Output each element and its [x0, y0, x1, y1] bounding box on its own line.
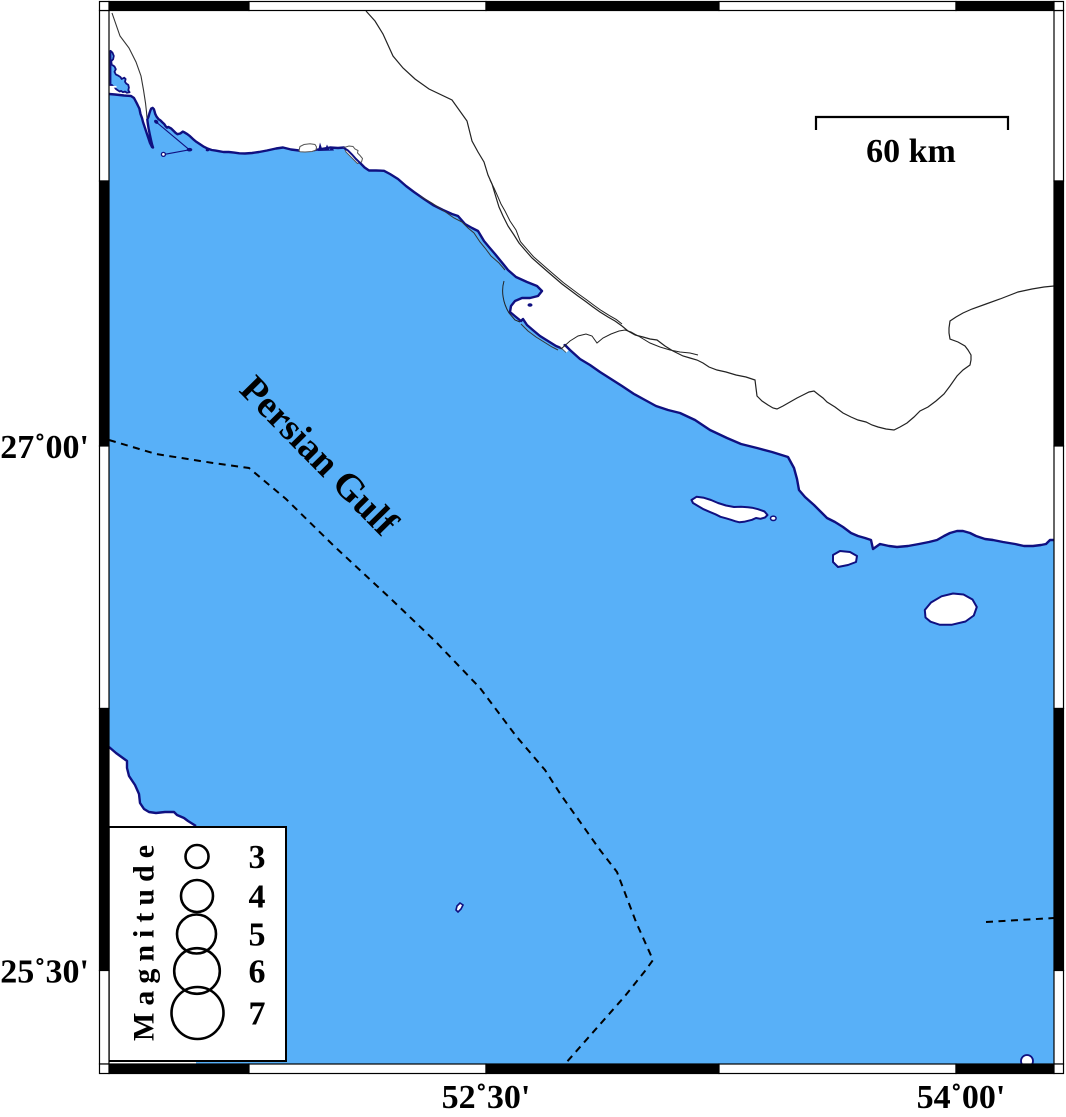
svg-text:Magnitude: Magnitude [128, 838, 161, 1041]
svg-text:25˚30': 25˚30' [0, 954, 89, 991]
svg-text:6: 6 [249, 954, 266, 991]
svg-text:5: 5 [249, 917, 266, 954]
svg-text:60 km: 60 km [866, 133, 956, 170]
svg-text:27˚00': 27˚00' [0, 429, 89, 466]
svg-text:4: 4 [249, 879, 266, 916]
svg-text:7: 7 [249, 996, 266, 1033]
svg-text:3: 3 [249, 839, 266, 876]
svg-text:52˚30': 52˚30' [442, 1079, 531, 1112]
svg-text:54˚00': 54˚00' [917, 1079, 1006, 1112]
